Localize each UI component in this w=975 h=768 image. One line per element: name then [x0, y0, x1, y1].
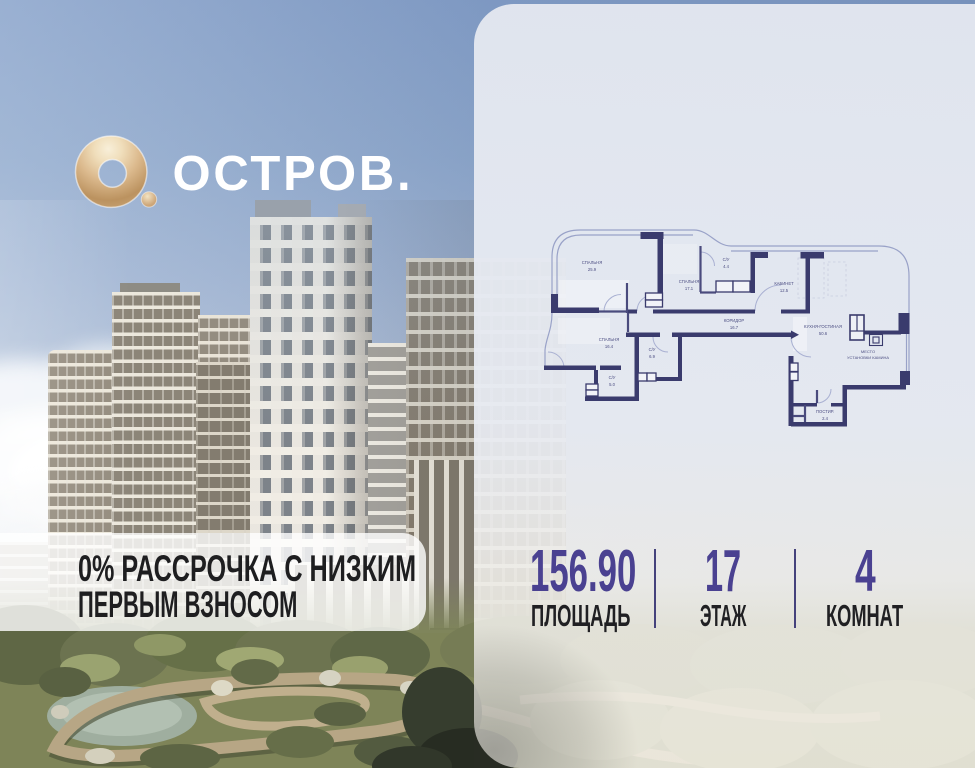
svg-text:С/У: С/У [649, 347, 656, 352]
svg-text:ПОСТИР.: ПОСТИР. [816, 409, 834, 414]
svg-text:СПАЛЬНЯ: СПАЛЬНЯ [582, 260, 602, 265]
svg-text:4.4: 4.4 [723, 264, 729, 269]
svg-text:МЕСТО: МЕСТО [861, 349, 875, 354]
svg-text:УСТАНОВКИ КАМИНА: УСТАНОВКИ КАМИНА [847, 355, 889, 360]
svg-text:КАБИНЕТ: КАБИНЕТ [774, 281, 794, 286]
svg-text:50.6: 50.6 [819, 331, 828, 336]
svg-text:16.7: 16.7 [730, 325, 739, 330]
svg-text:С/У: С/У [609, 375, 616, 380]
svg-text:5.0: 5.0 [609, 382, 615, 387]
svg-text:25.9: 25.9 [588, 267, 597, 272]
svg-text:2.4: 2.4 [822, 416, 828, 421]
svg-text:СПАЛЬНЯ: СПАЛЬНЯ [679, 279, 699, 284]
svg-text:16.4: 16.4 [605, 344, 614, 349]
svg-text:6.9: 6.9 [649, 354, 655, 359]
svg-text:С/У: С/У [723, 257, 730, 262]
svg-text:17.1: 17.1 [685, 286, 694, 291]
svg-text:КУХНЯ-ГОСТИНАЯ: КУХНЯ-ГОСТИНАЯ [804, 324, 842, 329]
svg-text:12.5: 12.5 [780, 288, 789, 293]
svg-text:СПАЛЬНЯ: СПАЛЬНЯ [599, 337, 619, 342]
svg-text:КОРИДОР: КОРИДОР [724, 318, 745, 323]
